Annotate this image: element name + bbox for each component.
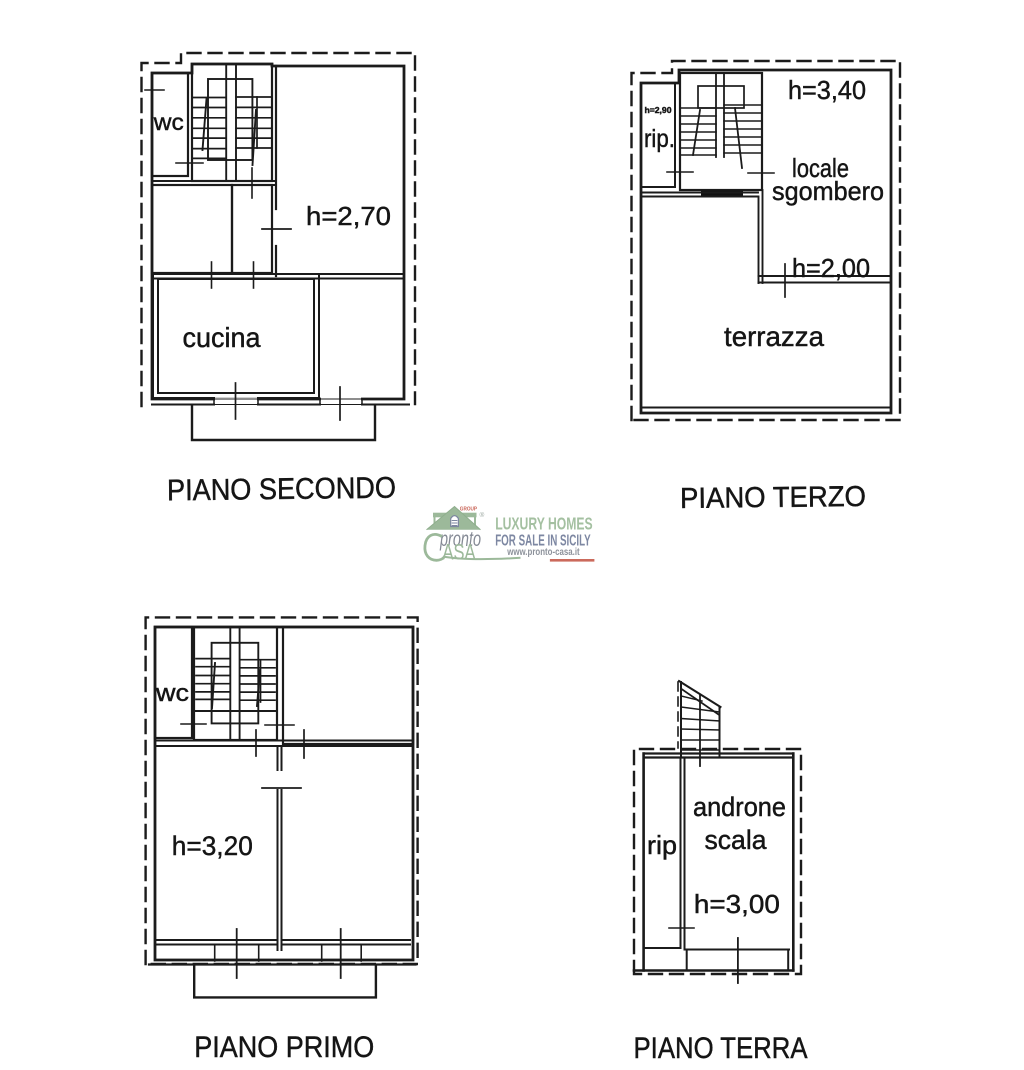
svg-text:h=3,00: h=3,00 — [694, 889, 780, 919]
svg-text:PIANO SECONDO: PIANO SECONDO — [167, 472, 396, 508]
svg-text:rip.: rip. — [644, 125, 675, 153]
svg-text:PIANO PRIMO: PIANO PRIMO — [194, 1031, 374, 1064]
svg-text:rip: rip — [647, 830, 677, 860]
svg-text:LUXURY HOMES: LUXURY HOMES — [495, 514, 593, 534]
svg-text:terrazza: terrazza — [724, 321, 824, 352]
svg-text:www.pronto-casa.it: www.pronto-casa.it — [506, 546, 580, 558]
svg-text:PIANO TERRA: PIANO TERRA — [634, 1032, 808, 1065]
svg-text:androne: androne — [693, 792, 786, 822]
svg-text:h=2,70: h=2,70 — [306, 201, 391, 231]
svg-text:wc: wc — [153, 109, 184, 135]
svg-text:h=3,40: h=3,40 — [788, 75, 866, 105]
svg-text:h=3,20: h=3,20 — [172, 831, 253, 861]
svg-text:cucina: cucina — [183, 322, 261, 353]
svg-text:wc: wc — [155, 680, 189, 707]
svg-text:GROUP: GROUP — [460, 507, 477, 513]
svg-text:PIANO TERZO: PIANO TERZO — [680, 481, 866, 515]
svg-text:scala: scala — [705, 825, 768, 855]
svg-text:®: ® — [480, 511, 485, 519]
svg-text:h=2,90: h=2,90 — [645, 106, 673, 115]
svg-text:h=2,00: h=2,00 — [792, 253, 870, 283]
svg-text:sgombero: sgombero — [772, 176, 884, 206]
svg-text:ASA: ASA — [443, 540, 476, 565]
